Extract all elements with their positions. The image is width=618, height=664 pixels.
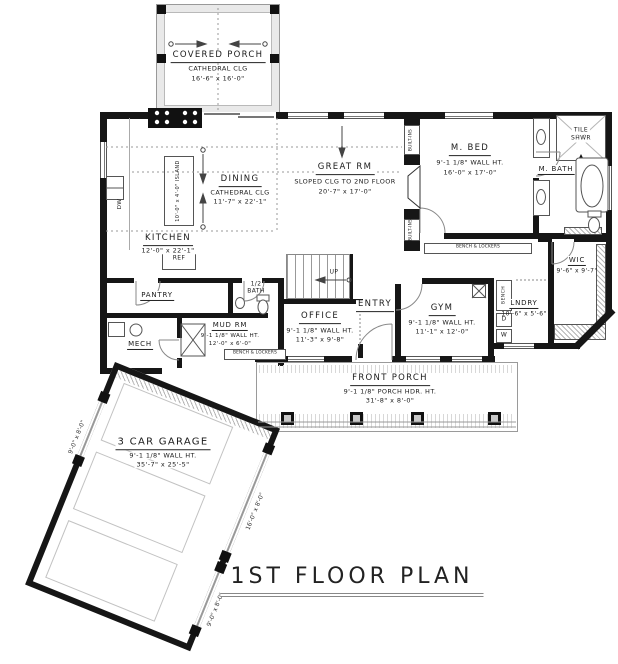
dw-label: DW [117,199,123,209]
floor-plan: 16'-0" x 8'-0" 9'-0" x 8'-0" 9'-0" x 8'-… [0,0,618,664]
window [100,142,107,178]
room-name-front-porch: FRONT PORCH [350,374,430,386]
porch-column [281,412,294,425]
room-dims-gym: 11'-1" x 12'-0" [415,328,468,335]
built-ins-label: BUILT-INS [410,219,415,241]
wall-segment [404,117,420,125]
porch-column [411,412,424,425]
room-clg-covered-porch: CATHEDRAL CLG [188,65,247,72]
room-dims-wic: 9'-6" x 9'-7" [557,269,598,276]
room-dims-m-bed: 16'-0" x 17'-0" [443,169,496,176]
wall-segment [404,241,420,251]
window [606,166,612,210]
room-name-garage: 3 CAR GARAGE [116,436,211,450]
sheet-title: 1ST FLOOR PLAN [221,564,484,597]
washer-label: W [501,333,507,340]
porch-post [270,5,279,14]
window [288,112,328,119]
room-name-dining: DINING [219,175,262,187]
deck-band [259,365,515,373]
room-dims-kitchen: 12'-0" x 22'-1" [139,247,196,254]
porch-column [350,412,363,425]
room-name-kitchen: KITCHEN [143,234,193,246]
room-wallht-garage: 9'-1 1/8" WALL HT. [127,452,198,459]
room-wallht-gym: 9'-1 1/8" WALL HT. [408,319,475,326]
island-label: 10'-0" x 4'-0" ISLAND [176,160,182,222]
porch-column [488,412,501,425]
porch-slider-opening [202,112,276,119]
garage-outline: 16'-0" x 8'-0" 9'-0" x 8'-0" 9'-0" x 8'-… [25,362,280,651]
room-clg-great-rm: SLOPED CLG TO 2ND FLOOR [292,178,397,185]
built-ins-label: BUILT-INS [410,129,415,151]
porch-post [157,54,166,63]
room-dims-office: 11'-3" x 9'-8" [296,336,345,343]
wall-segment [488,343,580,349]
room-wallht-mud-rm: 9'-1 1/8" WALL HT. [201,333,260,339]
room-name-pantry: PANTRY [140,291,174,301]
wic-shelving [596,244,606,336]
porch-post [157,5,166,14]
staircase [286,254,350,299]
kitchen-sink [106,176,124,200]
window [344,112,384,119]
room-dims-great-rm: 20'-7" x 17'-0" [316,188,373,195]
wall-segment [228,278,233,318]
room-name-great-rm: GREAT RM [316,163,375,175]
room-name-m-bed: M. BED [449,144,491,156]
wall-segment [358,344,363,358]
porch-post [270,54,279,63]
wall-segment [177,358,182,368]
window [504,343,534,349]
wall-segment [395,284,401,356]
room-name-tile-shwr-1: TILE [572,128,590,135]
bench-lockers-label: BENCH & LOCKERS [233,352,277,357]
dryer-label: D [501,317,506,324]
bench-lockers-label: BENCH & LOCKERS [456,246,500,251]
ref-label: REF [173,256,186,263]
window [445,112,493,119]
linen-cabinet [564,227,602,235]
wall-segment [104,278,134,283]
room-dims-lndry: 10'-6" x 5'-6" [501,312,546,319]
room-name-wic: WIC [568,256,586,266]
room-dims-mud-rm: 12'-0" x 6'-0" [209,341,252,347]
wall-segment [280,299,362,304]
room-wallht-m-bed: 9'-1 1/8" WALL HT. [436,159,503,166]
kitchen-counter-edge [129,118,130,250]
wall-segment [488,278,494,356]
wall-segment [574,236,612,242]
room-clg-dining: CATHEDRAL CLG [208,189,271,196]
vanity [533,180,550,216]
room-name-gym: GYM [429,304,456,316]
vanity [533,118,550,158]
room-dims-garage: 35'-7" x 25'-5" [134,461,191,468]
room-name-mech: MECH [127,340,153,350]
deck-band [259,414,515,428]
wall-segment [262,278,284,283]
range [148,108,202,128]
up-label: UP [330,270,339,277]
room-name-m-bath: M. BATH [538,165,575,175]
room-dims-covered-porch: 16'-6" x 16'-0" [191,75,244,82]
room-name-office: OFFICE [299,312,341,324]
room-wallht-office: 9'-1 1/8" WALL HT. [286,327,353,334]
fireplace [408,166,420,208]
room-name-entry: ENTRY [356,300,394,312]
room-name-half-bath-2: BATH [247,289,265,296]
room-dims-dining: 11'-7" x 22'-1" [211,198,268,205]
room-name-covered-porch: COVERED PORCH [171,51,266,63]
room-dims-front-porch: 31'-8" x 8'-0" [364,397,417,404]
room-hdr-front-porch: 9'-1 1/8" PORCH HDR. HT. [342,388,439,395]
broom-closet [472,284,486,298]
wall-segment [404,155,420,165]
bench-label: BENCH [501,286,506,304]
wall-segment [404,209,420,219]
wall-segment [177,318,182,338]
wall-segment [104,313,268,318]
wall-segment [606,112,612,314]
room-name-tile-shwr-2: SHWR [569,136,593,143]
room-name-mud-rm: MUD RM [212,321,248,331]
wic-shelving [554,324,606,340]
room-name-lndry: LNDRY [509,299,538,309]
utility-sink [108,322,125,337]
